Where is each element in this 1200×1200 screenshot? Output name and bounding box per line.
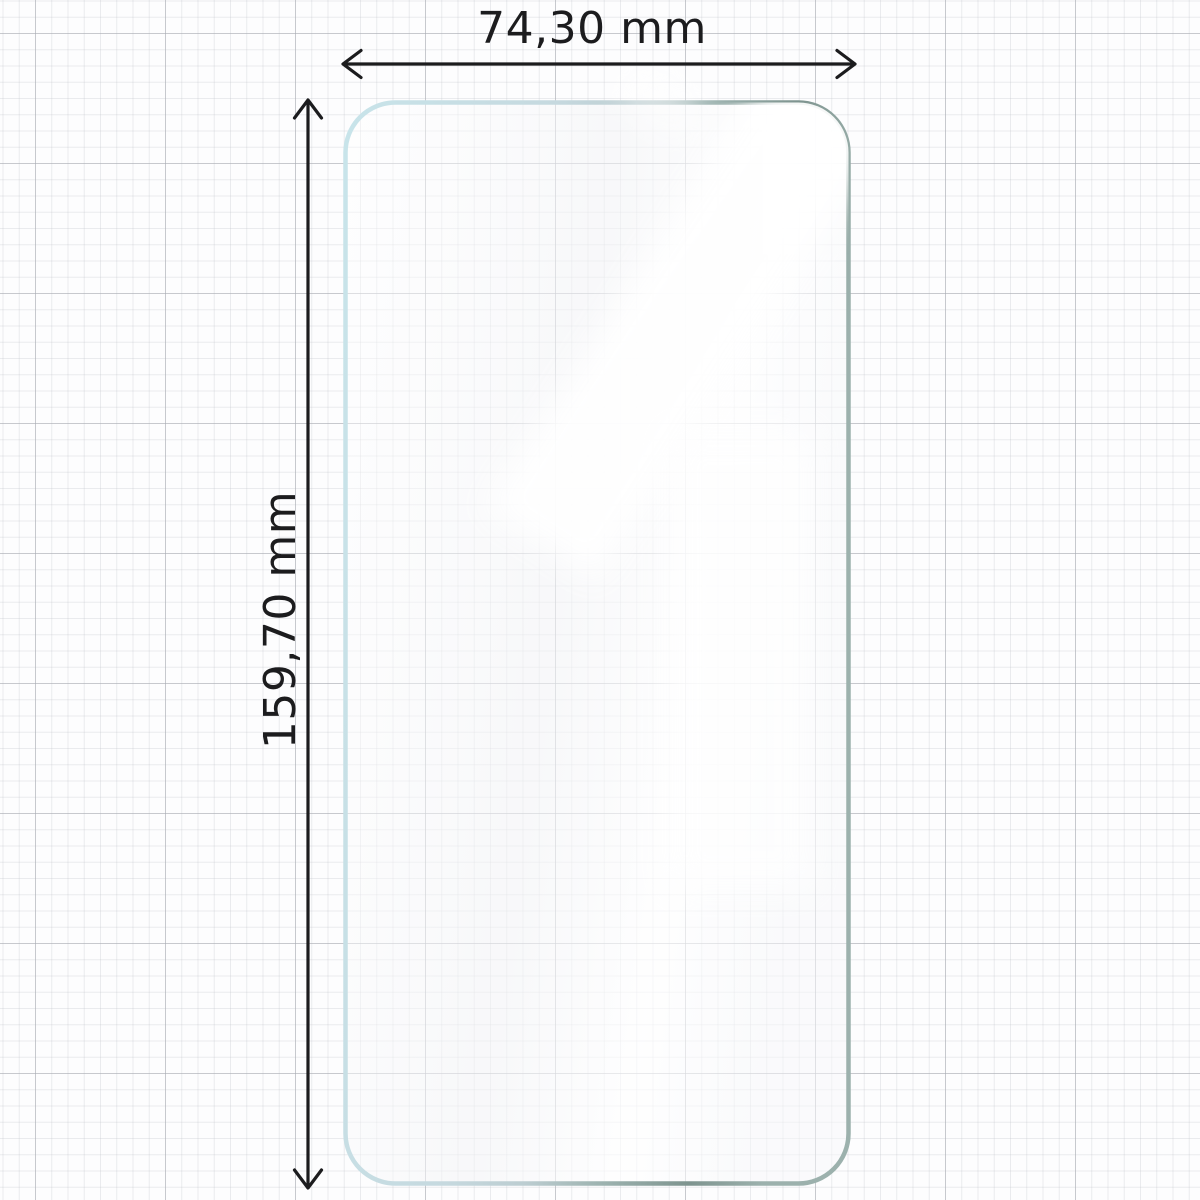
film-sheen-vertical — [668, 430, 813, 890]
diagram-canvas — [0, 0, 1200, 1200]
screen-protector-dimension-diagram: 74,30 mm 159,70 mm — [0, 0, 1200, 1200]
width-dimension-label: 74,30 mm — [477, 7, 707, 51]
width-dimension-arrow — [343, 51, 855, 78]
height-dimension-label: 159,70 mm — [259, 491, 303, 749]
